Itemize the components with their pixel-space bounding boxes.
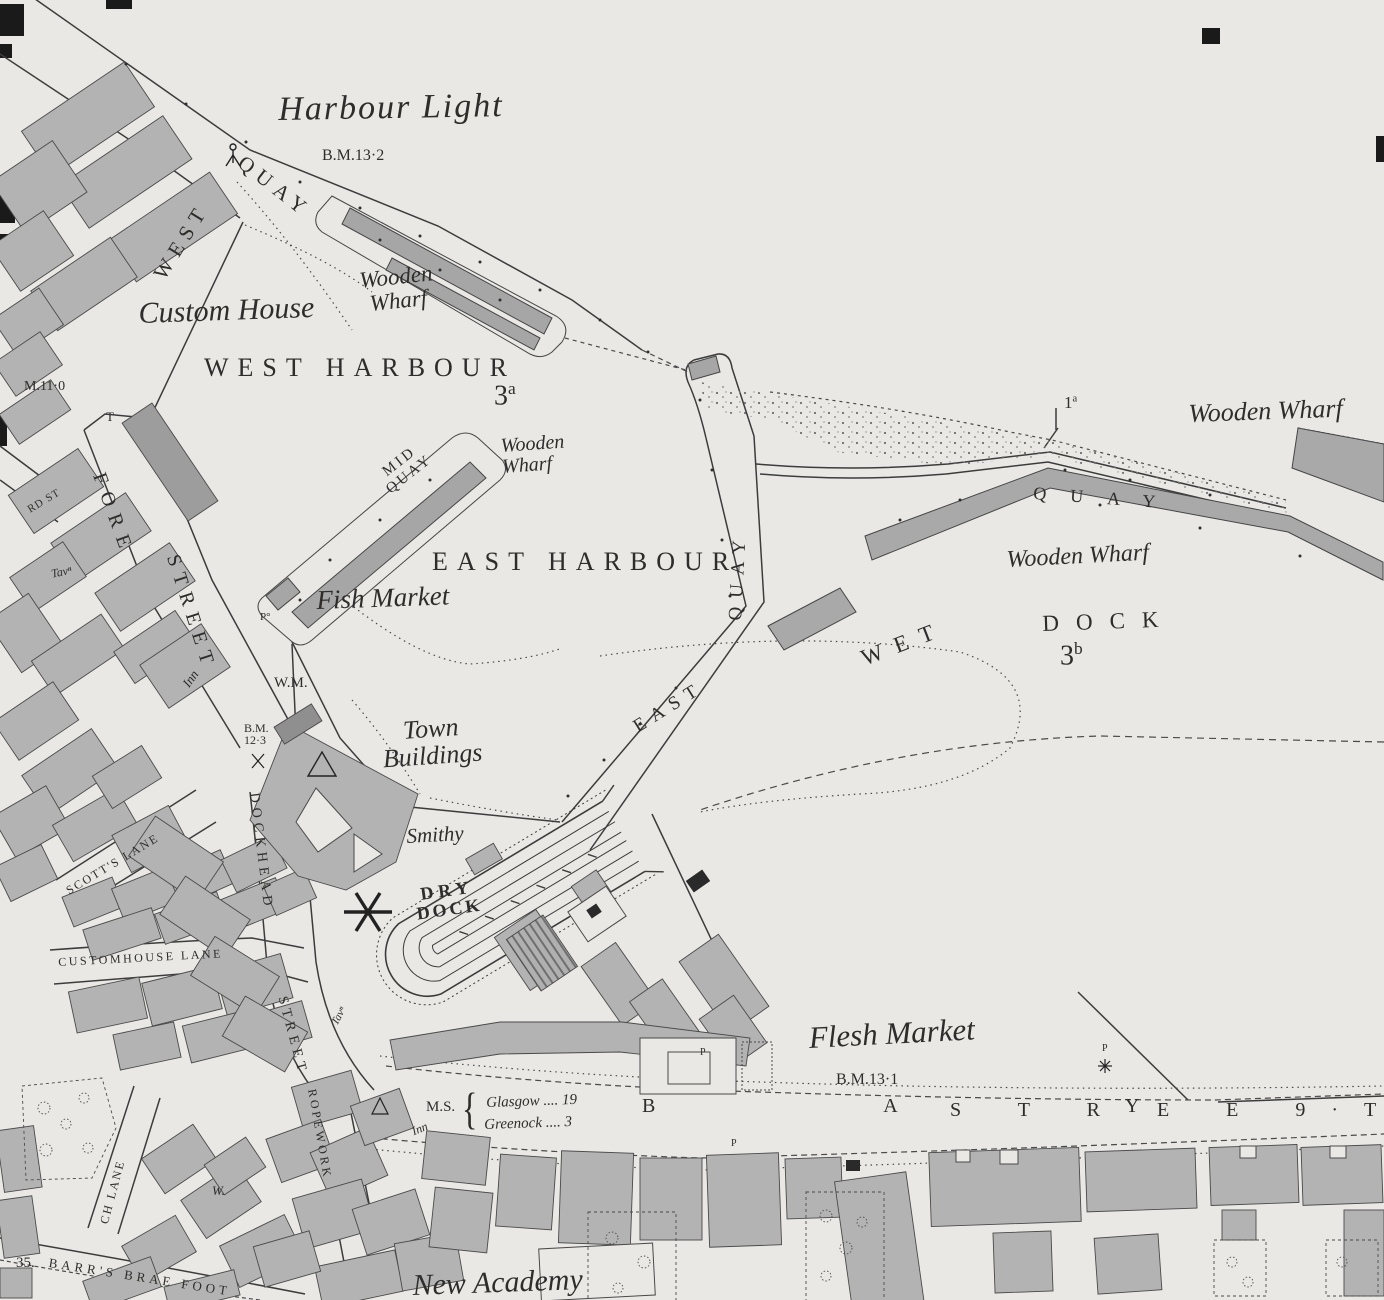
wet-dock-dock-label: DOCK: [1042, 607, 1176, 636]
ref-1a-label: 1a: [1064, 394, 1077, 412]
pump-label-fore: P°: [260, 612, 271, 623]
ref-3a-label: 3a: [494, 380, 516, 410]
pump-label-2: P: [731, 1139, 737, 1149]
wm-label: W.M.: [274, 676, 308, 692]
milestone-label: M.S.: [426, 1100, 455, 1116]
ref-1a-number: 1: [1064, 393, 1073, 412]
ref-3a-sup: a: [508, 379, 516, 398]
west-harbour-label: WEST HARBOUR: [204, 354, 516, 381]
benchmark-11-0-label: M.11·0: [24, 380, 65, 395]
custom-house-label: Custom House: [138, 292, 315, 329]
benchmark-12-3-line2: 12·3: [244, 734, 269, 746]
scanned-map: Harbour Light B.M.13·2 WEST QUAY Custom …: [0, 0, 1384, 1300]
ref-1a-sup: a: [1073, 393, 1078, 404]
fish-market-label: Fish Market: [316, 581, 450, 614]
greenock-mileage-label: Greenock .... 3: [484, 1115, 572, 1134]
t-mark-label: T: [106, 410, 114, 424]
ref-3b-label: 3b: [1060, 640, 1083, 670]
benchmark-13-2-label: B.M.13·2: [322, 148, 384, 165]
star-symbol: [344, 893, 392, 931]
harbour-light-label: Harbour Light: [278, 88, 504, 127]
mileage-brace: {: [462, 1086, 477, 1132]
number-35-label: 35.: [16, 1256, 35, 1272]
wooden-wharf-mid-line2: Wharf: [501, 452, 566, 477]
ref-3a-number: 3: [494, 380, 508, 411]
pump-label-1: P: [700, 1048, 706, 1058]
glasgow-mileage-label: Glasgow .... 19: [486, 1093, 577, 1112]
benchmark-13-1-label: B.M.13·1: [836, 1072, 898, 1089]
benchmark-12-3-label: B.M. 12·3: [244, 722, 269, 747]
east-harbour-label: EAST HARBOUR: [432, 548, 738, 575]
bay-street-street-letters: S T R E E 9·T: [950, 1100, 1384, 1121]
wooden-wharf-ne-label: Wooden Wharf: [1188, 395, 1343, 427]
benchmark-mark: [252, 754, 264, 768]
well-label: W.: [212, 1184, 225, 1198]
pump-label-3: P: [1102, 1044, 1108, 1054]
wooden-wharf-mid-label: Wooden Wharf: [500, 432, 566, 478]
ref-3b-number: 3: [1060, 640, 1074, 671]
smithy-label: Smithy: [406, 823, 464, 848]
new-academy-label: New Academy: [412, 1264, 583, 1300]
dotted-boundaries: [0, 182, 1384, 1300]
pump-symbol: [1098, 1059, 1112, 1073]
ref-3b-sup: b: [1074, 639, 1083, 658]
